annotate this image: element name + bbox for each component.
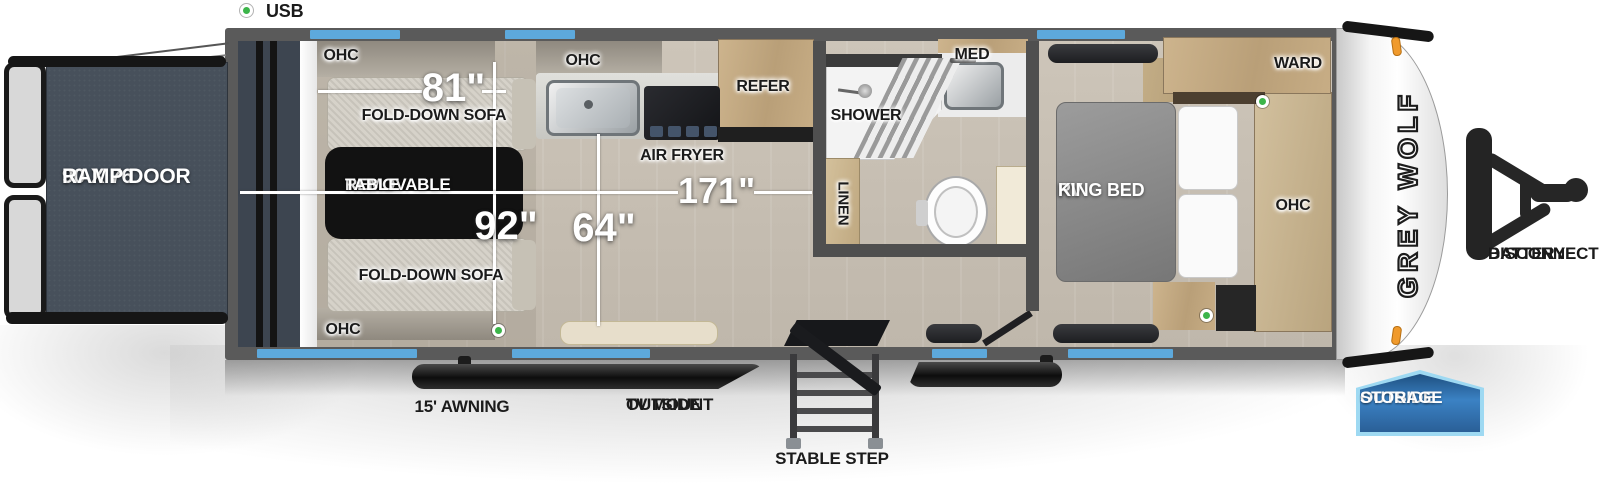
usb-outlet-nightstand (1200, 309, 1213, 322)
step-rung-3 (797, 408, 872, 414)
usb-outlet-ward (1256, 95, 1269, 108)
awning-roll-right (908, 362, 1062, 387)
shower-head-icon-2 (858, 84, 872, 98)
fold-down-sofa-bottom-label: FOLD-DOWN SOFA (355, 267, 507, 285)
bedroom-ohc-label: OHC (1262, 197, 1324, 215)
burner-3 (686, 126, 699, 137)
med-label: MED (946, 46, 998, 64)
ramp-rail-top (4, 62, 46, 188)
sofa-top-armrest (512, 79, 536, 149)
bath-side-cabinet (996, 166, 1030, 252)
dim-171-line-left (240, 191, 678, 194)
rear-door-light-strip (300, 41, 317, 347)
kitchen-sink-basin (556, 88, 630, 128)
sofa-bottom-armrest (512, 240, 536, 310)
stable-step-label: STABLE STEP (772, 449, 892, 468)
ward-label: WARD (1268, 55, 1328, 73)
body-drop-shadow (225, 360, 1345, 396)
rear-frame-bar-2 (270, 41, 277, 347)
bedroom-wall (1026, 41, 1039, 311)
floorplan-scene: USB 90 X 76RAMP DOOR OHC FOLD-DOWN SOFA … (0, 0, 1600, 492)
window-bottom-2 (512, 349, 650, 358)
hitch-arm-lower (1483, 201, 1553, 250)
rear-opening-dark (238, 41, 300, 347)
window-top-3 (1037, 30, 1125, 39)
kitchen-ohc-label: OHC (552, 52, 614, 70)
ramp-door-panel (46, 62, 228, 320)
nightstand-dark-front (1216, 285, 1256, 331)
burner-4 (704, 126, 717, 137)
grey-wolf-logo: GREY WOLF (1393, 74, 1427, 314)
ramp-rail-bottom (4, 195, 46, 320)
refer-label: REFER (728, 78, 798, 96)
step-foot-left (786, 438, 801, 449)
dim-81-value: 81" (416, 68, 491, 108)
usb-legend-icon (240, 4, 253, 17)
dim-92-value: 92" (474, 206, 538, 246)
usb-outlet-garage (492, 324, 505, 337)
garage-ohc-top-label: OHC (310, 47, 372, 65)
linen-label: LINEN (834, 168, 851, 238)
window-top-1 (310, 30, 400, 39)
bedroom-bench-bottom (1053, 324, 1159, 343)
burner-2 (668, 126, 681, 137)
wardrobe-shadow (1173, 92, 1265, 104)
kitchen-faucet (584, 100, 593, 109)
awning-label: 15' AWNING (408, 397, 516, 416)
bath-wall-bottom (813, 244, 1038, 257)
refrigerator-base (718, 127, 814, 142)
window-top-2 (505, 30, 575, 39)
step-rail-right (872, 354, 879, 440)
dim-171-value: 171" (678, 173, 754, 209)
marker-light-top (1391, 36, 1403, 56)
hallway-bench (926, 324, 982, 343)
hitch-post (1520, 176, 1531, 218)
step-rail-left (790, 354, 797, 440)
front-cap (1336, 28, 1448, 360)
window-bottom-4 (1068, 349, 1173, 358)
toilet-hinge (916, 200, 928, 226)
kitchen-bench (560, 321, 718, 345)
shower-label: SHOWER (824, 107, 908, 125)
dim-64-value: 64" (572, 208, 636, 248)
step-rung-4 (797, 426, 872, 432)
bath-wall-left (813, 41, 826, 256)
air-fryer-label: AIR FRYER (632, 147, 732, 165)
usb-legend-label: USB (266, 1, 316, 21)
bedroom-bench-top (1048, 44, 1158, 63)
garage-ohc-bottom-label: OHC (312, 321, 374, 339)
window-bottom-3 (932, 349, 987, 358)
nightstand (1153, 282, 1215, 330)
window-bottom-1 (257, 349, 417, 358)
ramp-frame-top (8, 56, 226, 67)
hitch-jack (1466, 128, 1492, 260)
ramp-frame-bottom (6, 312, 228, 324)
step-foot-right (868, 438, 883, 449)
pillow-top (1178, 106, 1238, 190)
awning-roll-main (412, 364, 764, 389)
rear-frame-bar-1 (256, 41, 263, 347)
dim-81-line-left (318, 90, 422, 93)
toilet-seat (934, 186, 978, 238)
hitch-coupler-knob (1564, 178, 1588, 202)
step-rung-2 (797, 390, 872, 396)
burner-1 (650, 126, 663, 137)
dim-171-line-right (754, 191, 812, 194)
pillow-bottom (1178, 194, 1238, 278)
